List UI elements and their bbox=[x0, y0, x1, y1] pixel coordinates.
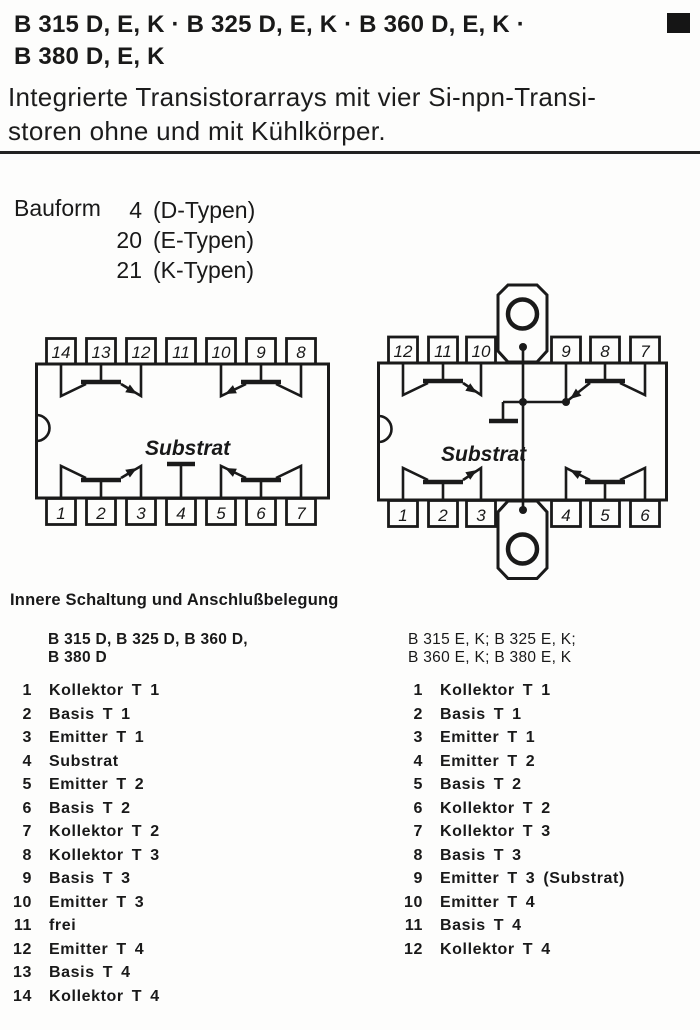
pin-number-cell: 7 bbox=[10, 820, 32, 844]
pin-label-cell: Kollektor T 4 bbox=[440, 938, 551, 962]
pin-number-cell: 8 bbox=[10, 844, 32, 868]
pin-number-cell: 13 bbox=[10, 961, 32, 985]
pin-number-cell: 7 bbox=[397, 820, 423, 844]
pin-number-cell: 14 bbox=[10, 985, 32, 1009]
left-column-header-line-2: B 380 D bbox=[48, 649, 248, 667]
bauform-number: 4 bbox=[110, 195, 142, 225]
pin-label-cell: Emitter T 4 bbox=[49, 938, 144, 962]
left-column-header-line-1: B 315 D, B 325 D, B 360 D, bbox=[48, 631, 248, 649]
transistor-t3-symbol bbox=[566, 363, 645, 403]
pin-number-cell: 10 bbox=[397, 891, 423, 915]
pin-number: 3 bbox=[136, 504, 146, 523]
pin-label-cell: Kollektor T 1 bbox=[49, 679, 160, 703]
pin-label-cell: Basis T 2 bbox=[440, 773, 522, 797]
pin-row: 9 Basis T 3 bbox=[10, 867, 160, 891]
pin-number: 6 bbox=[640, 506, 650, 525]
pin-number: 9 bbox=[256, 343, 266, 362]
pin-number-cell: 5 bbox=[397, 773, 423, 797]
mounting-hole-icon bbox=[508, 300, 537, 329]
pin-number-cell: 11 bbox=[10, 914, 32, 938]
subtitle-line-1: Integrierte Transistorarrays mit vier Si… bbox=[8, 82, 694, 113]
pin-row: 5 Emitter T 2 bbox=[10, 773, 160, 797]
pin-number: 14 bbox=[52, 343, 71, 362]
transistor-t1-symbol bbox=[61, 464, 141, 498]
pin-number-cell: 1 bbox=[397, 679, 423, 703]
bauform-description: (K-Typen) bbox=[153, 255, 254, 285]
pin-number-cell: 11 bbox=[397, 914, 423, 938]
pin-number: 12 bbox=[132, 343, 151, 362]
transistor-t2-symbol bbox=[566, 466, 645, 500]
pin-label-cell: Basis T 2 bbox=[49, 797, 131, 821]
pin-label-cell: Emitter T 1 bbox=[49, 726, 144, 750]
pin-number: 1 bbox=[56, 504, 65, 523]
pin-number: 11 bbox=[434, 342, 452, 361]
section-heading: Innere Schaltung und Anschlußbelegung bbox=[10, 591, 339, 610]
pin-label-cell: Emitter T 4 bbox=[440, 891, 535, 915]
pin-number: 9 bbox=[561, 342, 571, 361]
pin-number: 5 bbox=[600, 506, 610, 525]
pin-row: 3 Emitter T 1 bbox=[397, 726, 625, 750]
pin-label-cell: Emitter T 1 bbox=[440, 726, 535, 750]
pin-number-cell: 4 bbox=[397, 750, 423, 774]
pin-number-cell: 6 bbox=[10, 797, 32, 821]
bauform-label: Bauform bbox=[14, 195, 101, 222]
pin-number-cell: 6 bbox=[397, 797, 423, 821]
pin-label-cell: Kollektor T 3 bbox=[49, 844, 160, 868]
pin-row: 3 Emitter T 1 bbox=[10, 726, 160, 750]
bauform-number: 20 bbox=[110, 225, 142, 255]
pin-number-cell: 3 bbox=[397, 726, 423, 750]
pin-number: 2 bbox=[95, 504, 106, 523]
pin-label-cell: Kollektor T 2 bbox=[49, 820, 160, 844]
pin-label-cell: Basis T 4 bbox=[440, 914, 522, 938]
right-column-header: B 315 E, K; B 325 E, K; B 360 E, K; B 38… bbox=[408, 631, 576, 666]
pin-number: 3 bbox=[476, 506, 486, 525]
pin-number: 10 bbox=[212, 343, 231, 362]
pin-row: 11 frei bbox=[10, 914, 160, 938]
pin-number-cell: 5 bbox=[10, 773, 32, 797]
pin-number: 11 bbox=[172, 343, 190, 362]
substrate-symbol: Substrat bbox=[145, 437, 231, 498]
pin-row: 1 Kollektor T 1 bbox=[10, 679, 160, 703]
pin-row: 10 Emitter T 3 bbox=[10, 891, 160, 915]
transistor-t3-symbol bbox=[221, 364, 301, 398]
pin-label-cell: frei bbox=[49, 914, 76, 938]
transistor-t4-symbol bbox=[403, 363, 481, 397]
bottom-pin-row: 1 2 3 4 5 6 7 bbox=[47, 499, 316, 525]
bauform-description: (D-Typen) bbox=[153, 195, 255, 225]
pin-row: 6 Kollektor T 2 bbox=[397, 797, 625, 821]
pin-label-cell: Basis T 3 bbox=[440, 844, 522, 868]
substrate-label: Substrat bbox=[441, 443, 527, 466]
pin-list-d-types: 1 Kollektor T 1 2 Basis T 1 3 Emitter T … bbox=[10, 679, 160, 1008]
pin-row: 2 Basis T 1 bbox=[10, 703, 160, 727]
pin-number: 2 bbox=[437, 506, 448, 525]
pin-row: 11 Basis T 4 bbox=[397, 914, 625, 938]
substrate-rail bbox=[503, 343, 570, 514]
pin-label-cell: Basis T 4 bbox=[49, 961, 131, 985]
pin-label-cell: Emitter T 2 bbox=[440, 750, 535, 774]
pin-number-cell: 9 bbox=[10, 867, 32, 891]
pin-row: 10 Emitter T 4 bbox=[397, 891, 625, 915]
pin-number: 5 bbox=[216, 504, 226, 523]
pin-label-cell: Basis T 1 bbox=[49, 703, 131, 727]
pin-label-cell: Emitter T 3 (Substrat) bbox=[440, 867, 625, 891]
pin-row: 12 Emitter T 4 bbox=[10, 938, 160, 962]
pin-number: 7 bbox=[296, 504, 306, 523]
top-pin-row: 14 13 12 11 10 9 8 bbox=[47, 339, 316, 365]
pin-row: 7 Kollektor T 2 bbox=[10, 820, 160, 844]
pin-label-cell: Basis T 3 bbox=[49, 867, 131, 891]
pin-label-cell: Kollektor T 1 bbox=[440, 679, 551, 703]
bauform-number: 21 bbox=[110, 255, 142, 285]
pin-row: 2 Basis T 1 bbox=[397, 703, 625, 727]
pin-list-ek-types: 1 Kollektor T 1 2 Basis T 1 3 Emitter T … bbox=[397, 679, 625, 961]
corner-square-icon bbox=[667, 13, 690, 33]
pin-label-cell: Emitter T 3 bbox=[49, 891, 144, 915]
pin-number: 4 bbox=[561, 506, 570, 525]
bauform-description: (E-Typen) bbox=[153, 225, 254, 255]
package-body bbox=[37, 364, 329, 498]
pin-label-cell: Kollektor T 4 bbox=[49, 985, 160, 1009]
pin-number: 8 bbox=[600, 342, 610, 361]
pin-number-cell: 3 bbox=[10, 726, 32, 750]
pin-row: 7 Kollektor T 3 bbox=[397, 820, 625, 844]
substrate-symbol: Substrat bbox=[441, 402, 527, 466]
pin-number-cell: 12 bbox=[397, 938, 423, 962]
pin-label-cell: Kollektor T 3 bbox=[440, 820, 551, 844]
heatsink-package-diagram: 12 11 10 9 8 7 1 2 3 4 5 6 Substrat bbox=[377, 283, 668, 580]
pin-number-cell: 4 bbox=[10, 750, 32, 774]
pin-row: 8 Basis T 3 bbox=[397, 844, 625, 868]
left-column-header: B 315 D, B 325 D, B 360 D, B 380 D bbox=[48, 631, 248, 666]
pin-row: 13 Basis T 4 bbox=[10, 961, 160, 985]
index-notch-icon bbox=[379, 416, 392, 442]
pin-number-cell: 9 bbox=[397, 867, 423, 891]
pin-number: 13 bbox=[92, 343, 111, 362]
pin-row: 14 Kollektor T 4 bbox=[10, 985, 160, 1009]
right-column-header-line-1: B 315 E, K; B 325 E, K; bbox=[408, 631, 576, 649]
transistor-t2-symbol bbox=[221, 464, 301, 498]
horizontal-divider bbox=[0, 151, 700, 154]
pin-row: 9 Emitter T 3 (Substrat) bbox=[397, 867, 625, 891]
pin-number-cell: 2 bbox=[10, 703, 32, 727]
pin-row: 4 Substrat bbox=[10, 750, 160, 774]
transistor-t4-symbol bbox=[61, 364, 141, 398]
pin-row: 4 Emitter T 2 bbox=[397, 750, 625, 774]
page-title-line-1: B 315 D, E, K · B 325 D, E, K · B 360 D,… bbox=[14, 11, 525, 39]
pin-row: 8 Kollektor T 3 bbox=[10, 844, 160, 868]
pin-row: 6 Basis T 2 bbox=[10, 797, 160, 821]
pin-number: 6 bbox=[256, 504, 266, 523]
pin-number-cell: 12 bbox=[10, 938, 32, 962]
pin-number-cell: 1 bbox=[10, 679, 32, 703]
pin-label-cell: Substrat bbox=[49, 750, 119, 774]
pin-number: 1 bbox=[398, 506, 407, 525]
pin-number-cell: 2 bbox=[397, 703, 423, 727]
pin-number: 10 bbox=[472, 342, 491, 361]
page-title-line-2: B 380 D, E, K bbox=[14, 43, 165, 71]
pin-number: 4 bbox=[176, 504, 185, 523]
transistor-t1-symbol bbox=[403, 466, 481, 500]
pin-label-cell: Basis T 1 bbox=[440, 703, 522, 727]
right-column-header-line-2: B 360 E, K; B 380 E, K bbox=[408, 649, 576, 667]
bauform-row: 21 (K-Typen) bbox=[110, 255, 255, 285]
mounting-hole-icon bbox=[508, 535, 537, 564]
pin-number-cell: 8 bbox=[397, 844, 423, 868]
bauform-row: 4 (D-Typen) bbox=[110, 195, 255, 225]
pin-number: 7 bbox=[640, 342, 650, 361]
pin-row: 5 Basis T 2 bbox=[397, 773, 625, 797]
pin-number: 8 bbox=[296, 343, 306, 362]
bauform-list: 4 (D-Typen) 20 (E-Typen) 21 (K-Typen) bbox=[110, 195, 255, 285]
bauform-row: 20 (E-Typen) bbox=[110, 225, 255, 255]
pin-number: 12 bbox=[394, 342, 413, 361]
index-notch-icon bbox=[37, 415, 50, 441]
pin-label-cell: Kollektor T 2 bbox=[440, 797, 551, 821]
subtitle-line-2: storen ohne und mit Kühlkörper. bbox=[8, 116, 386, 147]
pin-row: 1 Kollektor T 1 bbox=[397, 679, 625, 703]
dip14-package-diagram: 14 13 12 11 10 9 8 1 2 3 4 5 6 7 bbox=[35, 337, 330, 529]
pin-row: 12 Kollektor T 4 bbox=[397, 938, 625, 962]
pin-number-cell: 10 bbox=[10, 891, 32, 915]
pin-label-cell: Emitter T 2 bbox=[49, 773, 144, 797]
substrate-label: Substrat bbox=[145, 437, 231, 460]
